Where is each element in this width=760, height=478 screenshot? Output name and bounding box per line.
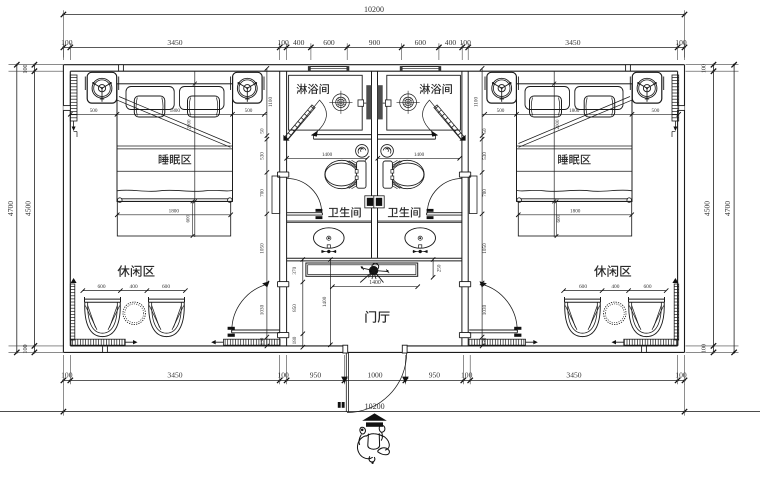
svg-text:1400: 1400: [322, 296, 328, 307]
svg-text:100: 100: [460, 38, 472, 47]
svg-text:1400: 1400: [322, 152, 333, 158]
svg-text:1030: 1030: [482, 304, 488, 315]
svg-text:530: 530: [482, 152, 488, 160]
svg-text:10200: 10200: [364, 5, 384, 14]
svg-text:370: 370: [292, 266, 298, 274]
svg-text:900: 900: [369, 38, 381, 47]
svg-text:100: 100: [675, 38, 687, 47]
svg-text:600: 600: [579, 284, 587, 290]
svg-text:4500: 4500: [23, 201, 32, 216]
svg-text:500: 500: [245, 108, 253, 114]
svg-text:100: 100: [675, 371, 687, 380]
svg-text:1800: 1800: [570, 208, 581, 214]
svg-text:100: 100: [277, 38, 289, 47]
svg-text:100: 100: [701, 64, 708, 73]
svg-text:100: 100: [277, 371, 289, 380]
svg-text:100: 100: [461, 371, 473, 380]
svg-text:3450: 3450: [566, 371, 581, 380]
svg-text:3450: 3450: [167, 38, 182, 47]
svg-text:3450: 3450: [167, 371, 182, 380]
svg-text:50: 50: [260, 128, 266, 134]
svg-text:850: 850: [292, 304, 298, 312]
svg-text:4700: 4700: [723, 201, 732, 216]
svg-text:3450: 3450: [565, 38, 580, 47]
svg-text:700: 700: [260, 189, 266, 197]
svg-text:1030: 1030: [260, 304, 266, 315]
svg-text:1100: 1100: [473, 97, 479, 108]
svg-text:400: 400: [445, 38, 457, 47]
svg-text:400: 400: [611, 284, 619, 290]
svg-text:1800: 1800: [169, 208, 180, 214]
svg-text:600: 600: [415, 38, 427, 47]
svg-text:950: 950: [310, 371, 322, 380]
svg-text:100: 100: [701, 344, 708, 353]
svg-text:500: 500: [90, 108, 98, 114]
svg-text:180: 180: [292, 336, 298, 344]
svg-text:600: 600: [323, 38, 335, 47]
svg-text:600: 600: [97, 284, 105, 290]
svg-text:1400: 1400: [369, 280, 381, 286]
svg-text:1400: 1400: [414, 152, 425, 158]
svg-text:400: 400: [130, 284, 138, 290]
svg-text:250: 250: [437, 264, 443, 272]
svg-text:950: 950: [429, 371, 441, 380]
svg-text:1050: 1050: [482, 243, 488, 254]
svg-text:1100: 1100: [268, 97, 274, 108]
svg-text:2000: 2000: [187, 119, 192, 130]
svg-text:500: 500: [497, 108, 505, 114]
svg-text:600: 600: [557, 214, 562, 222]
svg-text:500: 500: [652, 108, 660, 114]
svg-text:600: 600: [187, 214, 192, 222]
svg-text:100: 100: [61, 371, 73, 380]
svg-text:400: 400: [293, 38, 305, 47]
svg-text:1050: 1050: [260, 243, 266, 254]
svg-text:700: 700: [482, 189, 488, 197]
svg-text:4500: 4500: [702, 201, 711, 216]
svg-text:600: 600: [643, 284, 651, 290]
svg-text:100: 100: [22, 344, 29, 353]
svg-text:130: 130: [260, 337, 266, 345]
svg-text:100: 100: [61, 38, 73, 47]
svg-text:4700: 4700: [6, 201, 15, 216]
svg-text:10200: 10200: [365, 402, 385, 411]
svg-text:530: 530: [260, 152, 266, 160]
svg-text:600: 600: [162, 284, 170, 290]
svg-text:50: 50: [482, 128, 488, 134]
svg-text:1000: 1000: [367, 371, 382, 380]
svg-text:2000: 2000: [556, 119, 561, 130]
svg-text:100: 100: [22, 64, 29, 73]
